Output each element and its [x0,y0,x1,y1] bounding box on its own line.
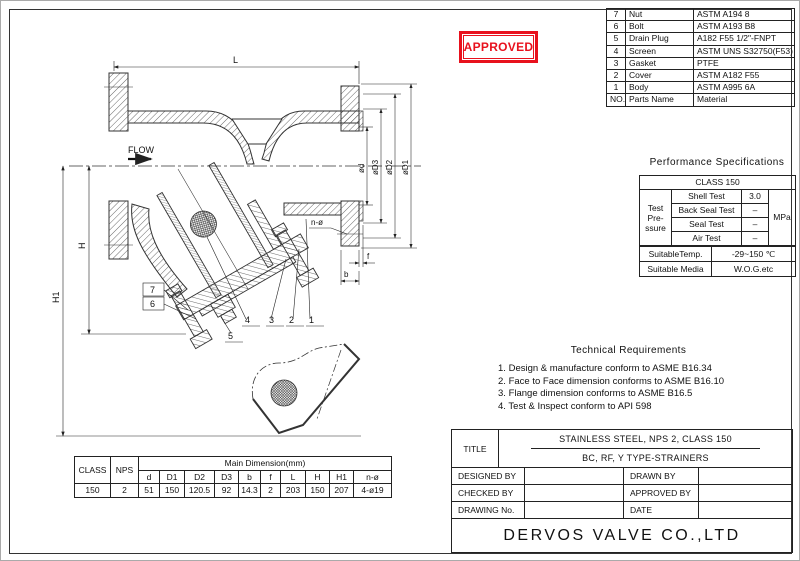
class-header: CLASS 150 [640,176,796,190]
screen-mesh [186,206,222,242]
svg-text:4: 4 [245,315,250,325]
table-row: 150251150120.59214.322031502074-ø19 [75,484,392,498]
performance-table-2: SuitableTemp.-29~150 ℃ Suitable MediaW.O… [639,246,796,277]
svg-text:ød: ød [357,164,366,173]
requirement-item: 4. Test & Inspect conform to API 598 [498,401,800,412]
technical-requirements: Technical Requirements 1. Design & manuf… [456,345,800,413]
company-name: DERVOS VALVE CO.,LTD [452,519,792,553]
flow-indicator: FLOW [128,145,155,159]
requirement-item: 2. Face to Face dimension conforms to AS… [498,376,800,387]
approved-stamp-text: APPROVED [463,35,534,59]
svg-text:FLOW: FLOW [128,145,155,155]
table-row: 7NutASTM A194 8 [607,9,795,21]
test-pressure-label: Test Pre- ssure [640,190,672,246]
approved-by-label: APPROVED BY [624,485,699,501]
requirement-item: 3. Flange dimension conforms to ASME B16… [498,388,800,399]
table-header-row: NO.Parts NameMaterial [607,94,795,106]
drawing-no-value [525,502,624,518]
drawing-no-label: DRAWING No. [452,502,525,518]
designed-by-value [525,468,624,484]
title-label: TITLE [452,430,499,467]
drawn-by-label: DRAWN BY [624,468,699,484]
unit-label: MPa [769,190,796,246]
drawing-sheet: FLOW L ød øD3 øD2 øD1 n-ø [0,0,800,561]
main-dimension-table: CLASS NPS Main Dimension(mm) dD1D2D3bfLH… [74,456,392,498]
leg-axis [178,169,248,289]
svg-text:f: f [367,252,370,261]
dim-diameters: ød øD3 øD2 øD1 [357,84,417,248]
table-row: 2CoverASTM A182 F55 [607,70,795,82]
dim-H: H [77,166,186,334]
svg-text:H: H [77,243,87,250]
dim-b: b [341,250,359,285]
checked-by-label: CHECKED BY [452,485,525,501]
svg-text:7: 7 [150,285,155,295]
table-row: 3GasketPTFE [607,57,795,69]
technical-requirements-title: Technical Requirements [456,345,800,356]
requirement-item: 1. Design & manufacture conform to ASME … [498,363,800,374]
performance-title: Performance Specifications [621,157,800,168]
drawing-title-line2: BC, RF, Y TYPE-STRAINERS [499,449,792,467]
table-row: 5Drain PlugA182 F55 1/2"-FNPT [607,33,795,45]
date-value [699,502,792,518]
parts-table: 7NutASTM A194 8 6BoltASTM A193 B8 5Drain… [606,8,795,107]
svg-text:øD1: øD1 [401,159,410,175]
svg-text:n-ø: n-ø [311,218,323,227]
svg-text:b: b [344,270,349,279]
svg-text:øD3: øD3 [371,159,380,175]
approved-stamp: APPROVED [459,31,538,63]
designed-by-label: DESIGNED BY [452,468,525,484]
span-header: Main Dimension(mm) [139,457,392,471]
svg-text:6: 6 [150,299,155,309]
screen-mesh [271,380,297,406]
approved-by-value [699,485,792,501]
table-row: 1BodyASTM A995 6A [607,82,795,94]
table-row: 6BoltASTM A193 B8 [607,21,795,33]
svg-text:L: L [233,55,238,65]
svg-text:øD2: øD2 [385,159,394,175]
drawn-by-value [699,468,792,484]
checked-by-value [525,485,624,501]
performance-table: CLASS 150 Test Pre- ssure Shell Test3.0 … [639,175,796,246]
screen-detail-view [252,344,359,433]
dim-L: L [114,55,359,84]
date-label: DATE [624,502,699,518]
svg-text:H1: H1 [51,291,61,303]
table-row: 4ScreenASTM UNS S32750(F53) [607,45,795,57]
drawing-title-line1: STAINLESS STEEL, NPS 2, CLASS 150 [531,430,760,449]
title-block: TITLE STAINLESS STEEL, NPS 2, CLASS 150 … [451,429,793,553]
